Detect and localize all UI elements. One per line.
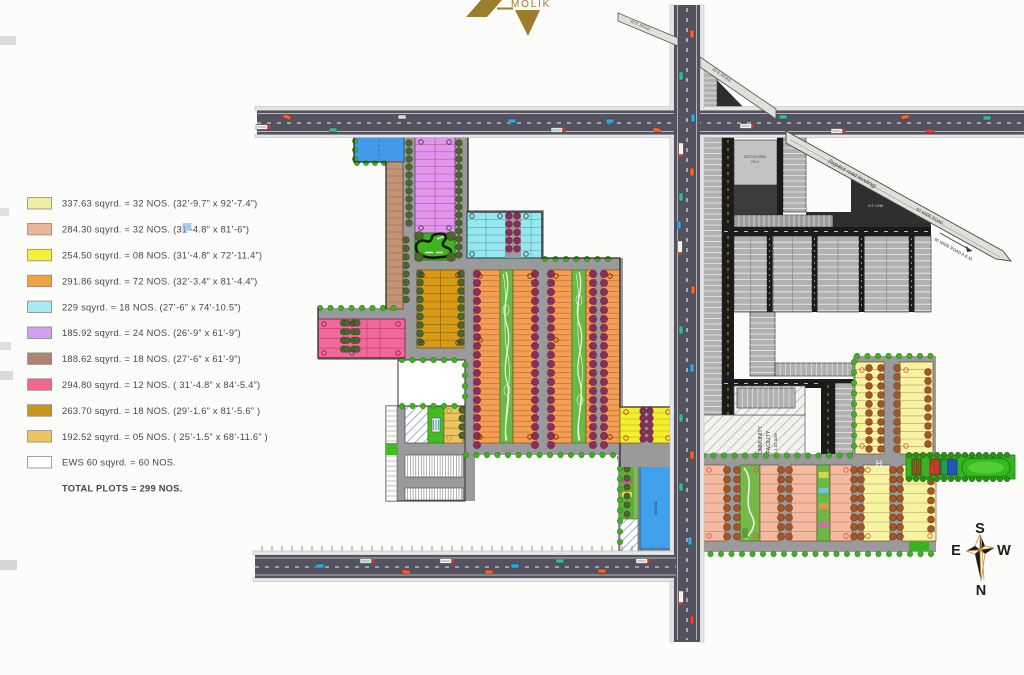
svg-text:H.T. LINE: H.T. LINE (868, 204, 884, 208)
svg-text:294.80 sqyrd. = 12 NOS. ( 31’-: 294.80 sqyrd. = 12 NOS. ( 31’-4.8” x 84’… (62, 380, 260, 390)
svg-text:SCHOOL: SCHOOL (654, 501, 658, 515)
svg-text:229 sqyrd. = 18 NOS. (27’-6” x: 229 sqyrd. = 18 NOS. (27’-6” x 74’-10.5”… (62, 302, 241, 312)
svg-text:MOLIK: MOLIK (511, 0, 551, 10)
svg-text:185.92 sqyrd. = 24 NOS. (26’-9: 185.92 sqyrd. = 24 NOS. (26’-9” x 61’-9”… (62, 328, 241, 338)
svg-text:COMMUNITY: COMMUNITY (758, 425, 764, 458)
svg-text:254.50 sqyrd. = 08 NOS. (31’-4: 254.50 sqyrd. = 08 NOS. (31’-4.8” x 72’-… (62, 251, 262, 261)
svg-text:S: S (975, 521, 985, 537)
svg-text:EWS 60 sqyrd. = 60 NOS.: EWS 60 sqyrd. = 60 NOS. (62, 458, 176, 468)
svg-text:PH-II: PH-II (751, 160, 758, 164)
svg-text:263.70 sqyrd. = 18 NOS. (29’-1: 263.70 sqyrd. = 18 NOS. (29’-1.6” x 81’-… (62, 406, 260, 416)
svg-text:192.52 sqyrd. = 05 NOS. ( 25’-: 192.52 sqyrd. = 05 NOS. ( 25’-1.5” x 68’… (62, 432, 268, 442)
svg-text:E: E (951, 543, 961, 559)
svg-text:291.86 sqyrd. = 72 NOS. (32’-3: 291.86 sqyrd. = 72 NOS. (32’-3.4” x 81’-… (62, 276, 257, 286)
svg-text:337.63 sqyrd. = 32 NOS. (32’-9: 337.63 sqyrd. = 32 NOS. (32’-9.7” x 92’-… (62, 199, 257, 209)
svg-text:N: N (976, 583, 986, 599)
svg-text:SECTOR AREA: SECTOR AREA (744, 155, 767, 159)
svg-text:TOTAL PLOTS = 299 NOS.: TOTAL PLOTS = 299 NOS. (62, 484, 182, 494)
svg-text:284.30 sqyrd. = 32 NOS. (31’-4: 284.30 sqyrd. = 32 NOS. (31’-4.8” x 81’-… (62, 225, 249, 235)
svg-text:W: W (997, 543, 1011, 559)
svg-text:1.31 acre: 1.31 acre (773, 433, 778, 451)
svg-text:FACILITY: FACILITY (766, 430, 772, 453)
svg-text:188.62 sqyrd. = 18 NOS. (27’-6: 188.62 sqyrd. = 18 NOS. (27’-6” x 61’-9”… (62, 354, 241, 364)
